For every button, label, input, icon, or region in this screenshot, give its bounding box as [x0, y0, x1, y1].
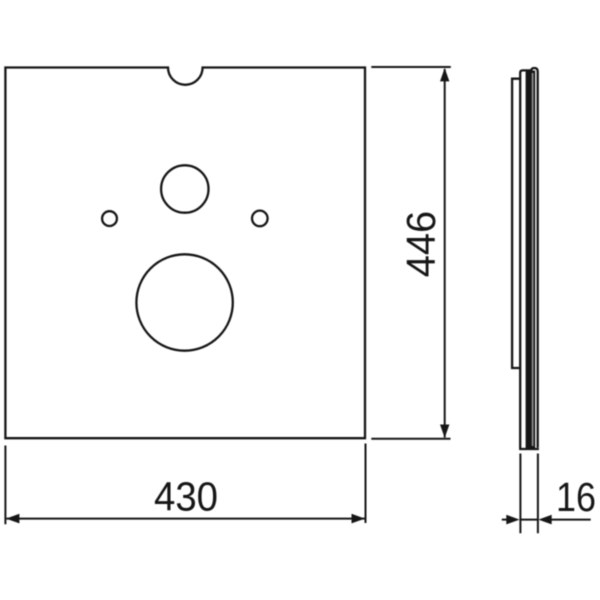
svg-text:16: 16 — [556, 474, 596, 520]
svg-text:430: 430 — [154, 473, 218, 519]
svg-text:446: 446 — [398, 211, 444, 278]
